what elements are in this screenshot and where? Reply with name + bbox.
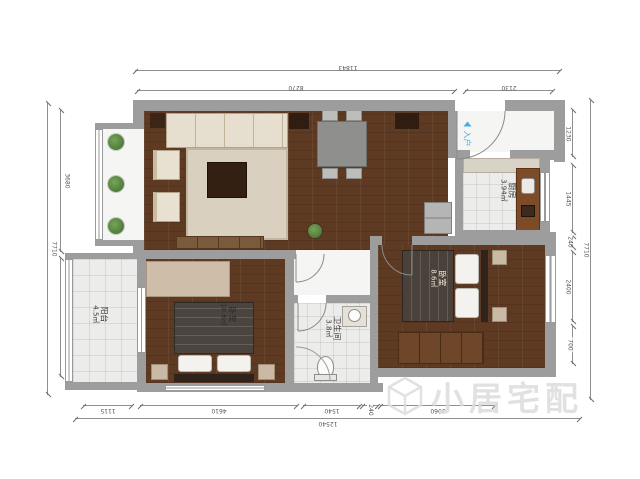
room-name: 厨房 bbox=[507, 182, 515, 198]
entry-label: 入户 bbox=[462, 131, 473, 147]
room-label-bedroom-main: 卧室 10.6㎡ bbox=[219, 303, 236, 326]
room-area: 10.6㎡ bbox=[219, 303, 226, 326]
room-label-bedroom-second: 卧室 8.6㎡ bbox=[429, 269, 446, 287]
room-label-balcony: 阳台 4.5㎡ bbox=[91, 305, 108, 323]
room-name: 阳台 bbox=[99, 306, 107, 322]
room-area: 3.94㎡ bbox=[499, 179, 506, 202]
entry-arrow-icon bbox=[463, 122, 471, 127]
room-area: 3.8㎡ bbox=[324, 319, 331, 337]
room-name: 卫生间 bbox=[332, 316, 340, 340]
room-label-kitchen: 厨房 3.94㎡ bbox=[499, 179, 516, 202]
entry-marker: 入户 bbox=[459, 120, 475, 144]
room-name: 卧室 bbox=[437, 270, 445, 286]
room-area: 4.5㎡ bbox=[91, 305, 98, 323]
room-label-bathroom: 卫生间 3.8㎡ bbox=[324, 316, 341, 340]
room-name: 卧室 bbox=[227, 306, 235, 322]
floor-plan-canvas: 阳台 4.5㎡ 卧室 10.6㎡ 卫生间 3.8㎡ 卧室 8.6㎡ 厨房 3.9… bbox=[0, 0, 640, 479]
room-area: 8.6㎡ bbox=[429, 269, 436, 287]
door-arcs bbox=[0, 0, 640, 479]
